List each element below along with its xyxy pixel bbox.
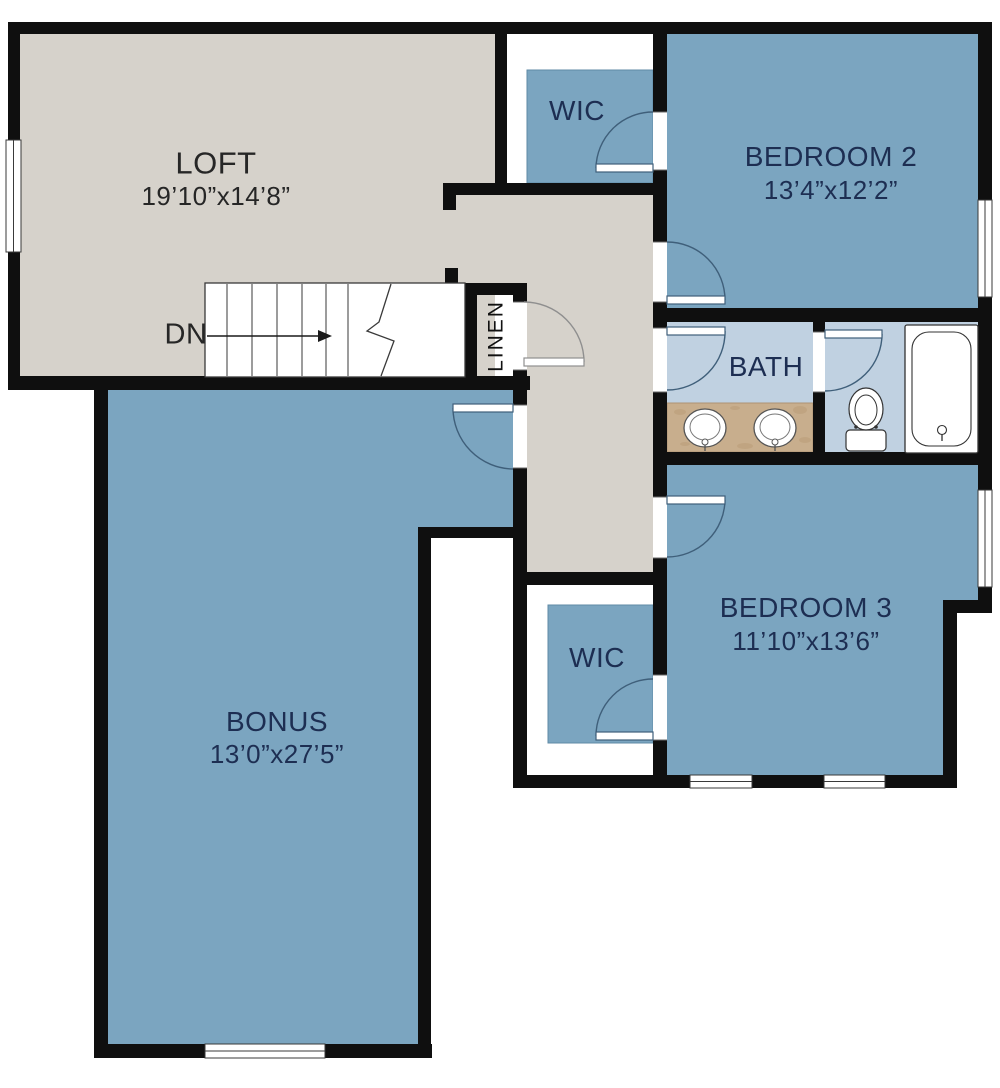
bonus-window (205, 1044, 325, 1058)
bedroom3-side-window (978, 490, 992, 587)
wic-top-label: WIC (549, 97, 605, 125)
bonus-label: BONUS (226, 708, 328, 736)
bedroom2-dims: 13’4”x12’2” (764, 177, 898, 203)
bedroom3-bottom-window-2 (824, 775, 885, 788)
floor-plan: LOFT 19’10”x14’8” WIC BEDROOM 2 13’4”x12… (0, 0, 1000, 1088)
bedroom3-bottom-window-1 (690, 775, 752, 788)
bedroom3-label: BEDROOM 3 (720, 594, 893, 622)
bonus-dims: 13’0”x27’5” (210, 741, 344, 767)
loft-window (6, 140, 21, 252)
toilet (846, 388, 886, 451)
stairs-dn-label: DN (165, 321, 208, 350)
loft-label: LOFT (175, 148, 256, 179)
wic-bottom-floor (548, 605, 653, 743)
bedroom2-label: BEDROOM 2 (745, 143, 918, 171)
linen-label: LINEN (486, 300, 507, 372)
loft-dims: 19’10”x14’8” (141, 183, 290, 209)
bath-label: BATH (729, 353, 804, 381)
hall-floor (527, 195, 653, 572)
bedroom3-dims: 11’10”x13’6” (732, 628, 879, 654)
bedroom2-window (978, 200, 992, 297)
wic-bottom-label: WIC (569, 644, 625, 672)
staircase (205, 283, 465, 377)
bathtub (905, 325, 978, 453)
